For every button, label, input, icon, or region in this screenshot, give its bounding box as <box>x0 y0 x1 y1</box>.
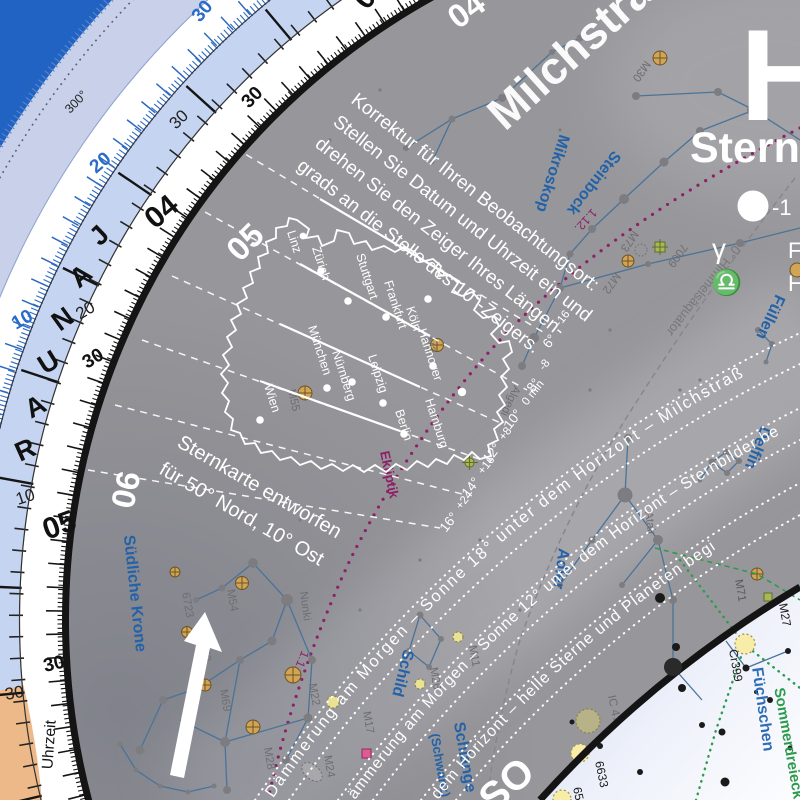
svg-text:65: 65 <box>570 786 587 800</box>
svg-text:06: 06 <box>104 468 148 512</box>
vernal-equinox-icon: γ <box>712 233 726 264</box>
bright-star-on-horizon <box>664 658 682 676</box>
planisphere-screenshot: 0° Himmelsäquator Ekliptik 1.12. 1.1. <box>0 0 800 800</box>
time-ring-label: Uhrzeit <box>39 719 59 770</box>
magnitude-symbol <box>738 191 769 222</box>
date-ring-december-segment <box>2 690 20 800</box>
svg-text:30: 30 <box>3 682 25 704</box>
title-subtitle: Stern <box>690 124 800 172</box>
legend-f-partial: F <box>788 238 800 263</box>
autumn-equinox-icon: ♎ <box>711 268 742 297</box>
magnitude-value: -1 <box>772 195 792 220</box>
legend-cluster-icon <box>790 263 800 277</box>
